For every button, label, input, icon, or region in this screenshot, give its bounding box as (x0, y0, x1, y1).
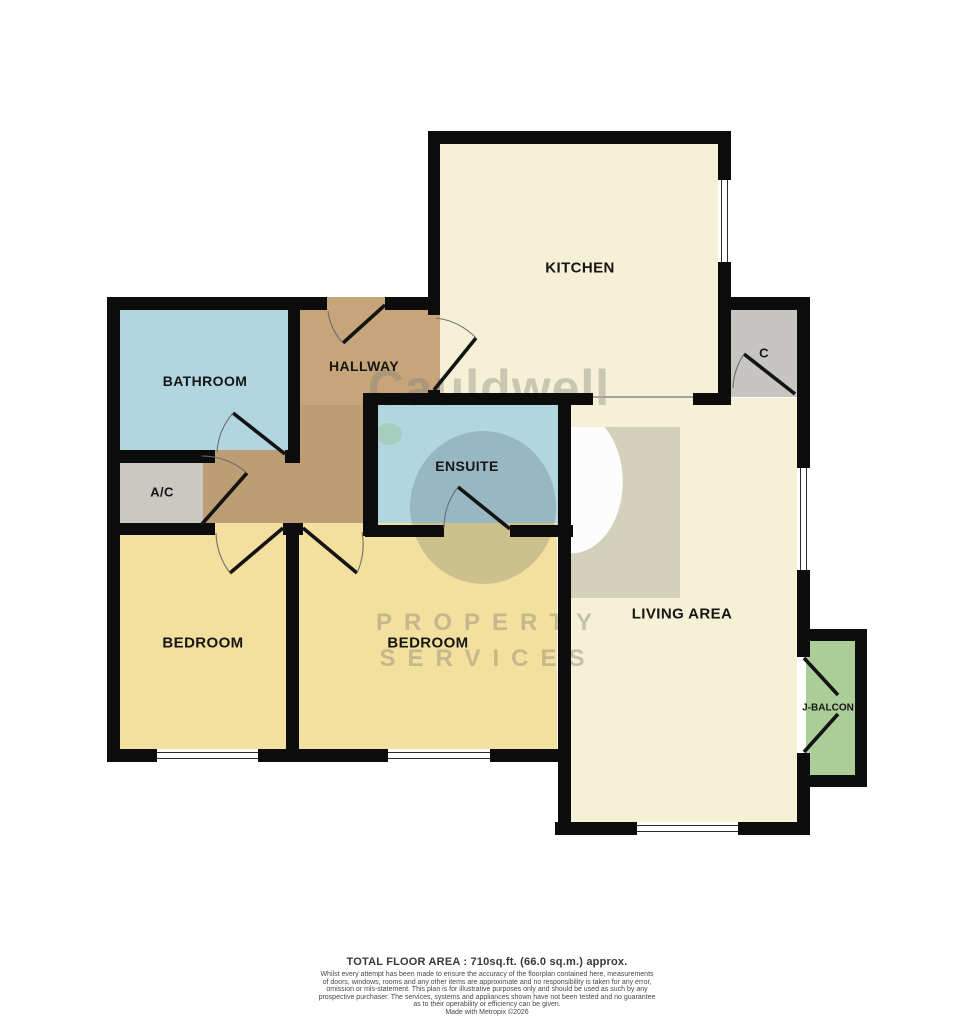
total-floor-area-text: TOTAL FLOOR AREA : 710sq.ft. (66.0 sq.m.… (0, 956, 974, 968)
watermark-logo-block (571, 427, 680, 598)
wall (428, 131, 440, 315)
wall (285, 450, 300, 463)
wall (428, 131, 731, 144)
label-bathroom: BATHROOM (163, 373, 248, 389)
label-balcony: J-BALCON (802, 703, 854, 714)
label-living: LIVING AREA (632, 606, 733, 623)
wall (107, 450, 215, 463)
disclaimer-line: of doors, windows, rooms and any other i… (0, 979, 974, 987)
open-plan-divider-line (593, 396, 693, 398)
label-ac: A/C (150, 485, 174, 500)
wall (558, 393, 571, 835)
room-hallway-fill-mid (300, 405, 365, 529)
wall (288, 310, 300, 450)
wall (718, 131, 731, 180)
wall (365, 525, 444, 537)
wall (107, 297, 327, 310)
wall (855, 629, 867, 787)
watermark-green-blob (376, 423, 402, 445)
watermark-logo-circle (410, 431, 556, 584)
disclaimer-line: omission or mis-statement. This plan is … (0, 986, 974, 994)
wall (286, 523, 299, 762)
label-ensuite: ENSUITE (435, 458, 498, 474)
disclaimer-text: Whilst every attempt has been made to en… (0, 971, 974, 1017)
wall (107, 523, 215, 535)
wall (693, 393, 731, 405)
wall (718, 262, 731, 397)
disclaimer-line: as to their operability or efficiency ca… (0, 1001, 974, 1009)
wall (363, 393, 378, 536)
footer: TOTAL FLOOR AREA : 710sq.ft. (66.0 sq.m.… (0, 956, 974, 1017)
wall (805, 775, 867, 787)
label-hallway: HALLWAY (329, 358, 399, 374)
floorplan-canvas: Cauldwell PROPERTY SERVICES (0, 0, 974, 1024)
living-bottom-window (637, 822, 738, 835)
disclaimer-line: Whilst every attempt has been made to en… (0, 971, 974, 979)
bedroom2-window (388, 749, 490, 762)
disclaimer-line: prospective purchaser. The services, sys… (0, 994, 974, 1002)
label-bedroom2: BEDROOM (387, 635, 468, 652)
watermark-brand-text: Cauldwell (368, 359, 610, 417)
made-with-credit: Made with Metropix ©2026 (0, 1009, 974, 1017)
wall (797, 570, 810, 657)
wall (797, 297, 810, 468)
living-side-window (797, 468, 810, 570)
label-kitchen: KITCHEN (545, 260, 614, 277)
label-bedroom1: BEDROOM (162, 635, 243, 652)
bedroom1-window (157, 749, 258, 762)
kitchen-window (718, 180, 731, 262)
label-closet: C (759, 346, 769, 361)
